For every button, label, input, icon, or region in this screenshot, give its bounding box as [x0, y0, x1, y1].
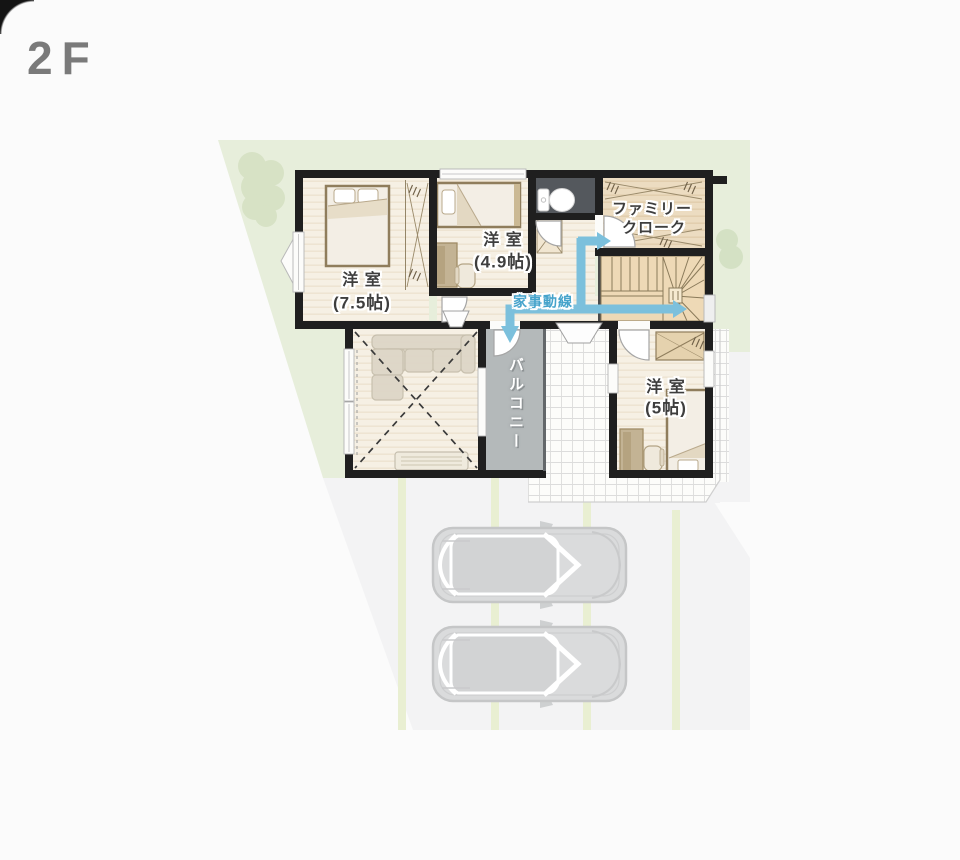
bedroom-75-name: 洋 室 [342, 271, 381, 291]
bedroom-5-size: (5帖) [645, 397, 687, 418]
balcony-edge [543, 329, 546, 471]
desk-icon [434, 243, 457, 287]
family-closet-label-2: クローク [622, 220, 686, 239]
bedroom-49-size: (4.9帖) [474, 251, 532, 272]
bedroom-75-size: (7.5帖) [333, 292, 391, 313]
toilet-icon [538, 189, 575, 212]
closet-5-hatch [656, 332, 704, 360]
chair-icon [644, 446, 664, 471]
bedroom-5-name: 洋 室 [646, 378, 685, 398]
tv-board-icon [395, 452, 468, 470]
rounded-corner [0, 0, 34, 34]
housework-flow-label: 家事動線 [513, 293, 573, 311]
double-bed-icon [326, 186, 389, 266]
floor-plan-drawing [0, 0, 960, 860]
chair-icon [455, 264, 475, 288]
balcony-label: バルコニー [505, 357, 526, 452]
single-bed-icon [437, 183, 520, 227]
family-closet-label-1: ファミリー [612, 201, 692, 220]
floor-plan-page: 2F 洋 室 (7.5帖) 洋 室 (4.9帖) 洋 室 (5帖) ファミリー … [0, 0, 960, 860]
floor-title: 2F [27, 30, 99, 88]
bedroom-49-name: 洋 室 [483, 231, 522, 251]
desk-icon [620, 429, 643, 475]
